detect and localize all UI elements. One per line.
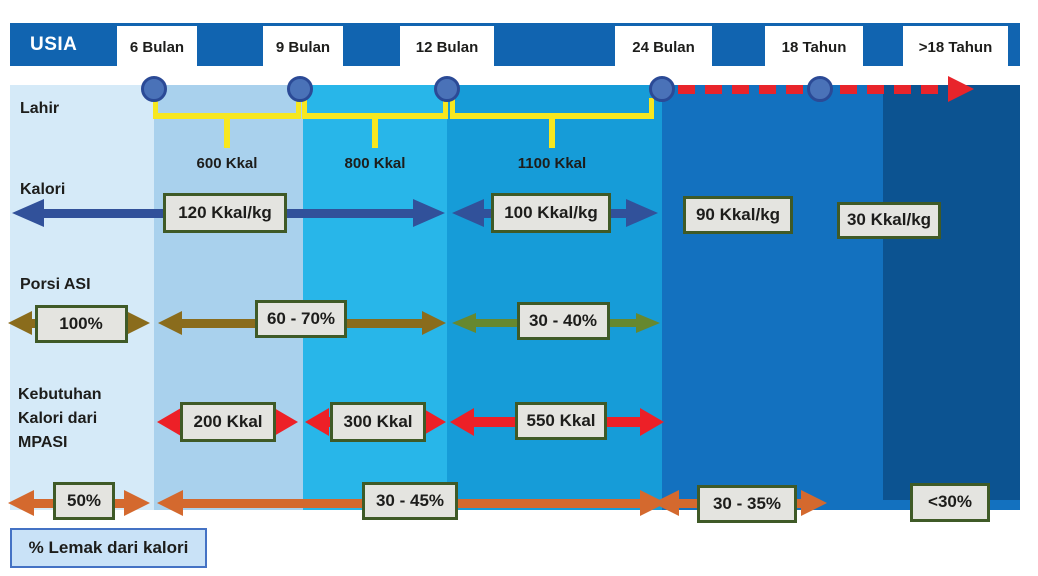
legend-box: % Lemak dari kalori <box>10 528 207 568</box>
value-box-porsi-asi: 30 - 40% <box>517 302 610 340</box>
arrow-head-right-icon <box>801 490 827 516</box>
value-box-mpasi: 200 Kkal <box>180 402 276 442</box>
age-label: 24 Bulan <box>615 26 712 69</box>
arrow-head-right-icon <box>422 311 446 335</box>
value-box-mpasi: 300 Kkal <box>330 402 426 442</box>
arrow-head-right-icon <box>640 408 664 436</box>
age-label: 9 Bulan <box>263 26 343 69</box>
value-box-porsi-asi: 60 - 70% <box>255 300 347 338</box>
arrow-head-left-icon <box>305 408 329 436</box>
bracket <box>450 98 654 119</box>
arrow-head-left-icon <box>450 408 474 436</box>
arrow-head-left-icon <box>8 490 34 516</box>
arrow-head-right-icon <box>274 408 298 436</box>
value-box-lemak: 50% <box>53 482 115 520</box>
arrow-head-right-icon <box>124 490 150 516</box>
arrow-head-left-icon <box>452 313 476 333</box>
color-band <box>303 85 447 510</box>
row-label: Porsi ASI <box>20 273 91 297</box>
age-label: >18 Tahun <box>903 26 1008 69</box>
arrow-head-right-icon <box>126 311 150 335</box>
color-band <box>154 85 303 510</box>
bracket <box>302 98 448 119</box>
arrow-head-left-icon <box>157 408 181 436</box>
bracket-label: 800 Kkal <box>315 155 435 172</box>
age-label: 12 Bulan <box>400 26 494 69</box>
value-box-kalori: 120 Kkal/kg <box>163 193 287 233</box>
bracket-label: 1100 Kkal <box>492 155 612 172</box>
value-box-porsi-asi: 100% <box>35 305 128 343</box>
arrow-head-left-icon <box>653 490 679 516</box>
value-box-lemak: 30 - 45% <box>362 482 458 520</box>
bracket-stem <box>372 117 378 148</box>
value-box-mpasi: 550 Kkal <box>515 402 607 440</box>
dashed-arrow-head-icon <box>948 76 974 102</box>
nutrition-timeline-infographic: USIA % Lemak dari kalori 6 Bulan9 Bulan1… <box>0 0 1038 576</box>
arrow-head-left-icon <box>452 199 484 227</box>
usia-title: USIA <box>30 23 77 66</box>
arrow-head-left-icon <box>158 311 182 335</box>
legend-label: % Lemak dari kalori <box>29 538 189 558</box>
color-band <box>447 85 662 510</box>
arrow-head-left-icon <box>12 199 44 227</box>
arrow-head-right-icon <box>626 199 658 227</box>
arrow-head-right-icon <box>413 199 445 227</box>
bracket-label: 600 Kkal <box>167 155 287 172</box>
value-box-kalori: 90 Kkal/kg <box>683 196 793 234</box>
value-box-kalori: 100 Kkal/kg <box>491 193 611 233</box>
bracket-stem <box>224 117 230 148</box>
row-label: Kebutuhan Kalori dari MPASI <box>18 383 102 455</box>
timeline-node-circle <box>141 76 167 102</box>
age-label: 6 Bulan <box>117 26 197 69</box>
timeline-node-circle <box>434 76 460 102</box>
arrow-head-left-icon <box>157 490 183 516</box>
value-box-lemak: 30 - 35% <box>697 485 797 523</box>
timeline-node-circle <box>287 76 313 102</box>
age-label: 18 Tahun <box>765 26 863 69</box>
bracket-stem <box>549 117 555 148</box>
timeline-node-circle <box>649 76 675 102</box>
timeline-node-circle <box>807 76 833 102</box>
arrow-head-left-icon <box>8 311 32 335</box>
bracket <box>153 98 301 119</box>
value-box-kalori: 30 Kkal/kg <box>837 202 941 239</box>
arrow-head-right-icon <box>636 313 660 333</box>
value-box-lemak: <30% <box>910 483 990 522</box>
color-band <box>883 85 1020 500</box>
row-label: Lahir <box>20 97 59 121</box>
